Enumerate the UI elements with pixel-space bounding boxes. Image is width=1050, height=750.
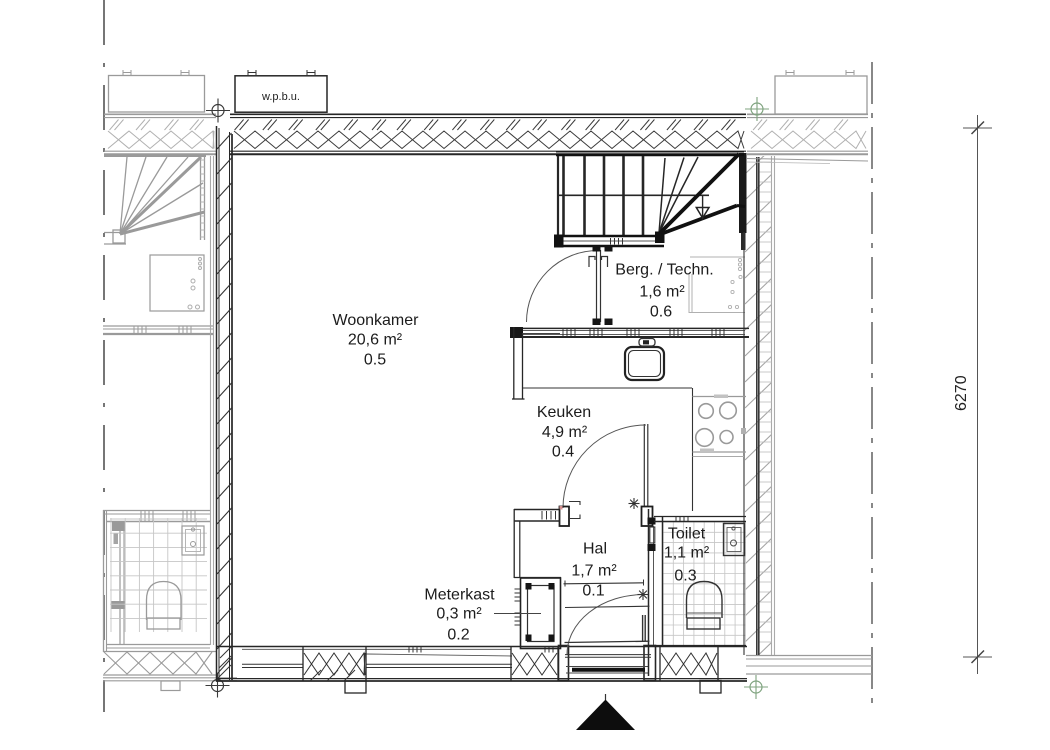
svg-text:Hal: Hal <box>583 541 607 558</box>
svg-text:6270: 6270 <box>953 375 970 411</box>
svg-text:1,1 m²: 1,1 m² <box>664 545 710 562</box>
svg-text:0.3: 0.3 <box>674 568 696 585</box>
svg-text:1,6 m²: 1,6 m² <box>639 284 685 301</box>
svg-text:Woonkamer: Woonkamer <box>333 312 420 329</box>
svg-text:0.5: 0.5 <box>364 352 386 369</box>
svg-text:Berg. / Techn.: Berg. / Techn. <box>615 262 713 279</box>
svg-text:1,7 m²: 1,7 m² <box>571 563 617 580</box>
svg-text:4,9 m²: 4,9 m² <box>542 424 588 441</box>
svg-text:Keuken: Keuken <box>537 404 591 421</box>
svg-text:0.6: 0.6 <box>650 304 672 321</box>
svg-text:0.1: 0.1 <box>582 583 604 600</box>
svg-text:Toilet: Toilet <box>668 526 706 543</box>
svg-text:Meterkast: Meterkast <box>424 587 495 604</box>
svg-text:w.p.b.u.: w.p.b.u. <box>261 91 300 103</box>
svg-text:0.2: 0.2 <box>447 627 469 644</box>
svg-text:0.4: 0.4 <box>552 444 574 461</box>
svg-text:20,6 m²: 20,6 m² <box>348 332 403 349</box>
svg-text:0,3 m²: 0,3 m² <box>436 606 482 623</box>
